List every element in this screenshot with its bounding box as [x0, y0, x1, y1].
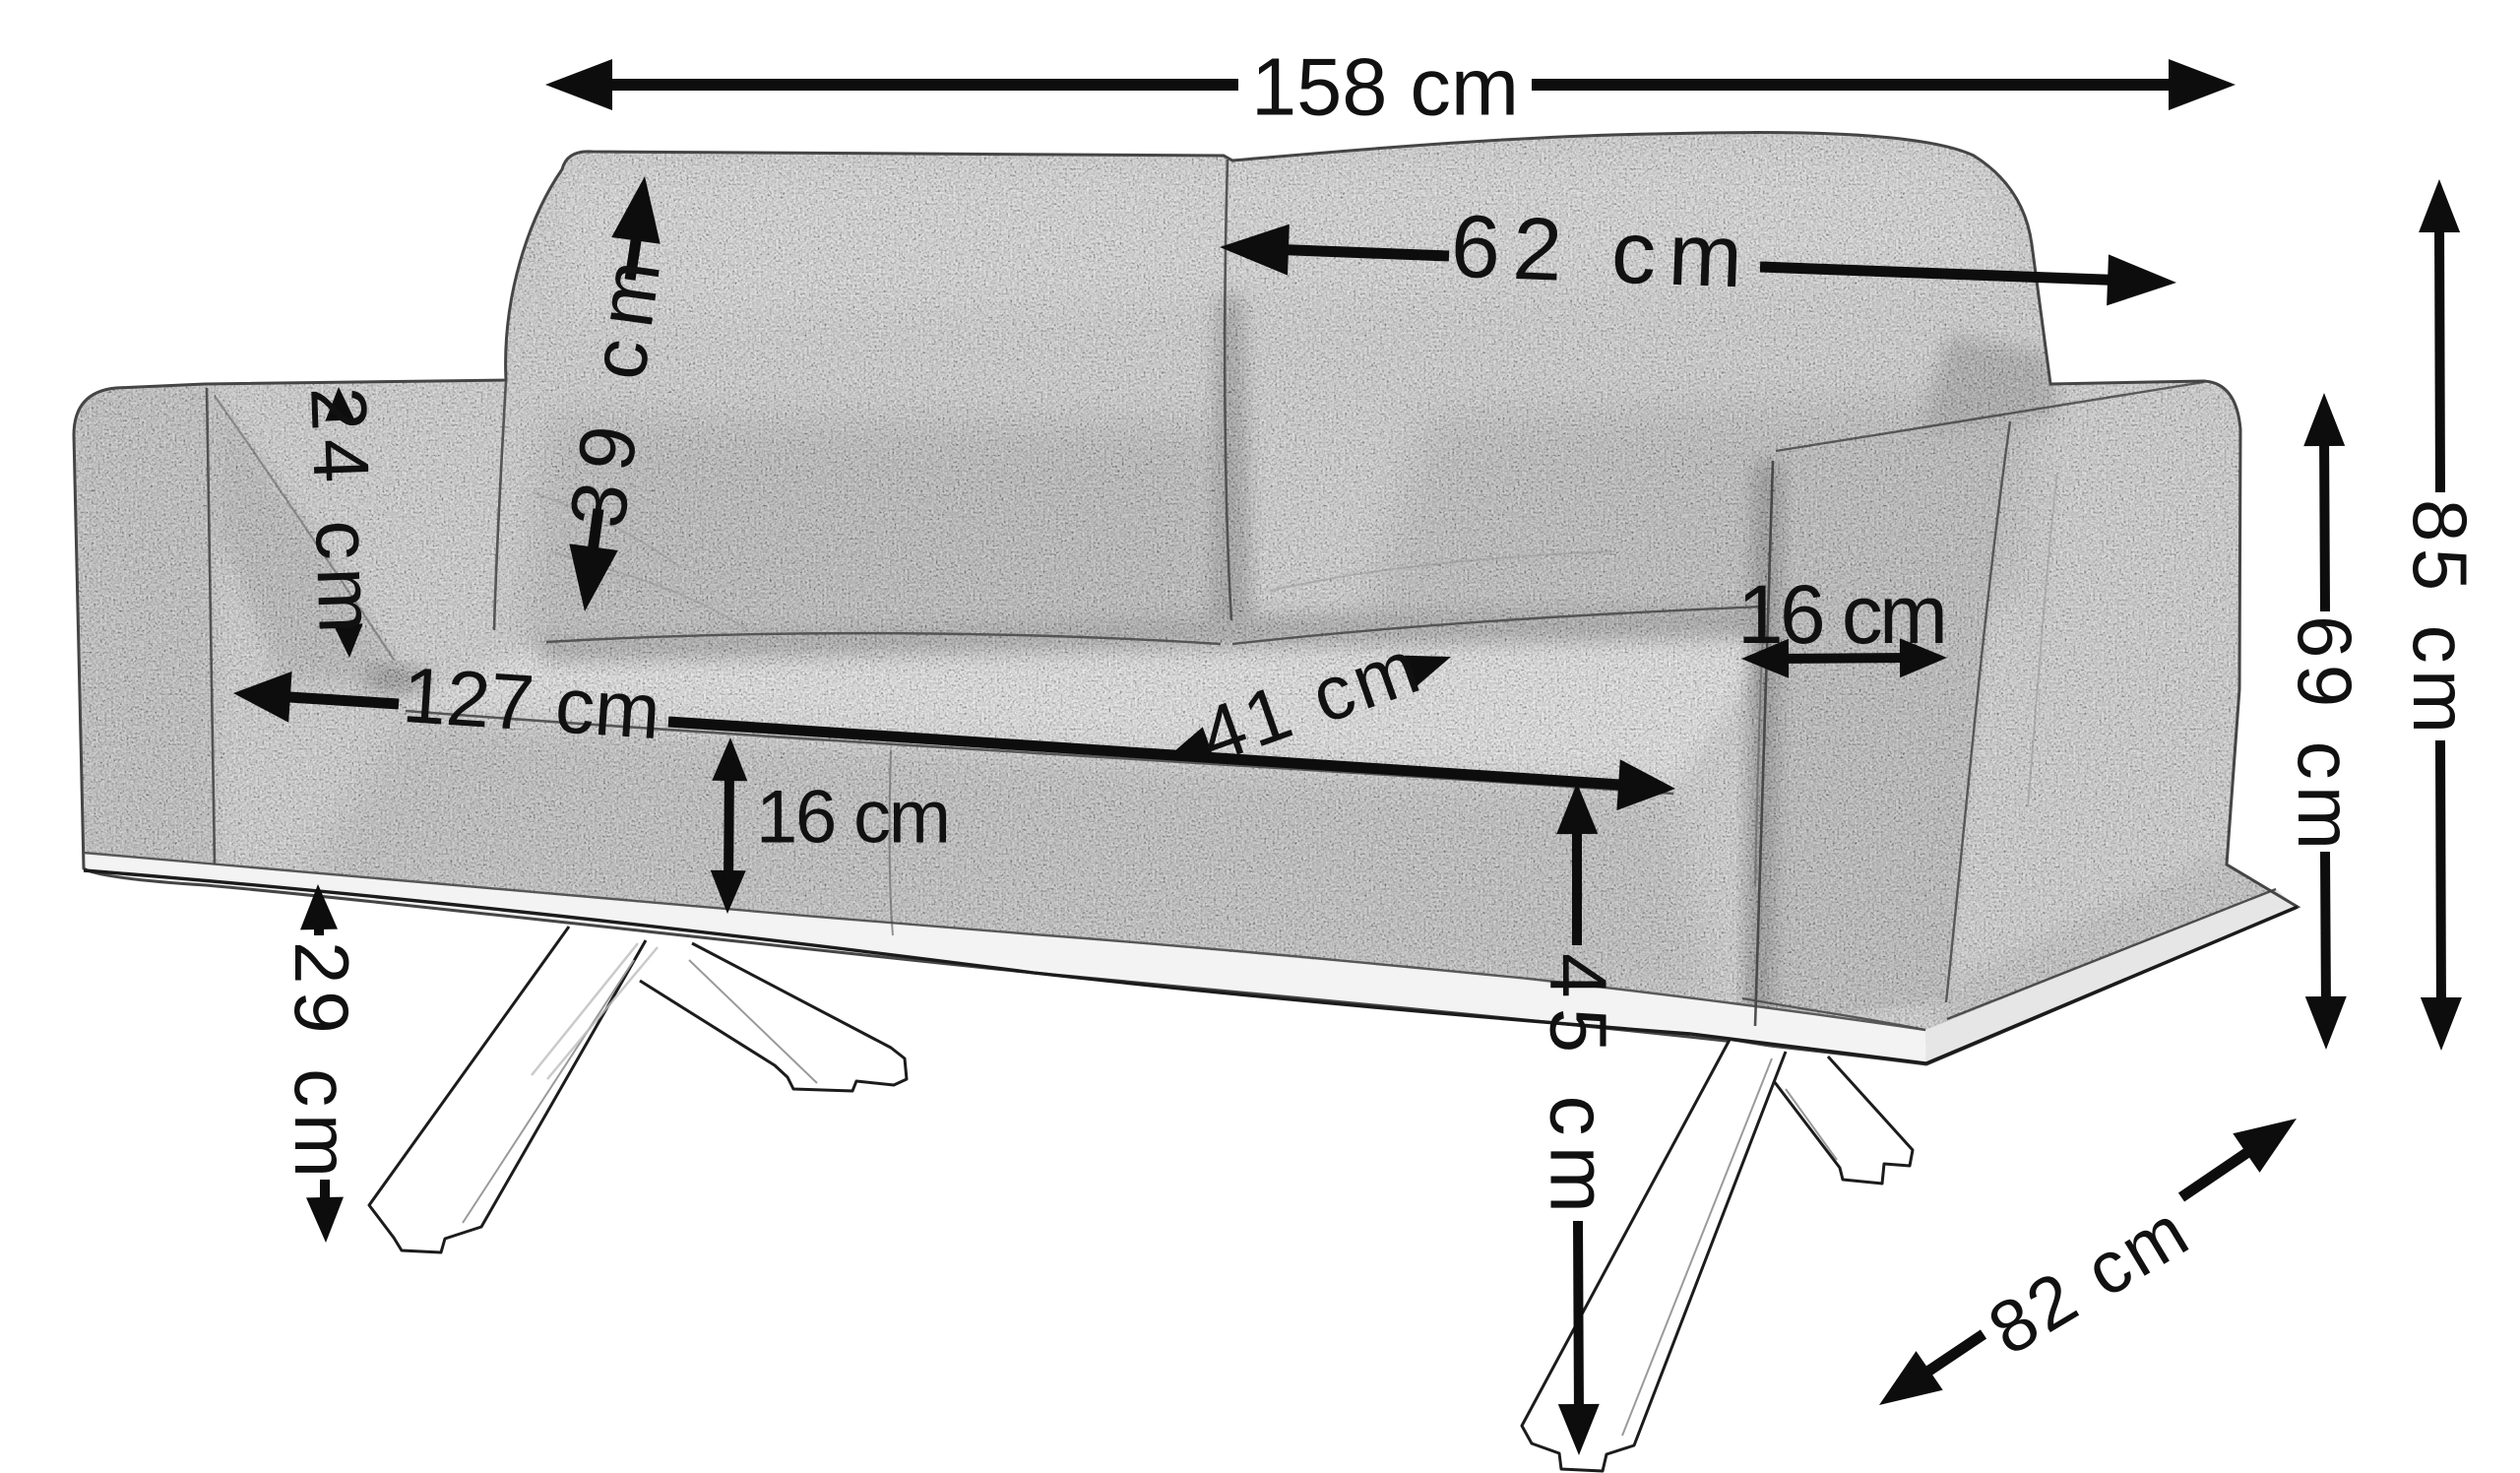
svg-text:127 cm: 127 cm [400, 651, 662, 755]
svg-text:85 cm: 85 cm [2397, 499, 2484, 734]
svg-text:45 cm: 45 cm [1534, 953, 1623, 1213]
svg-text:29 cm: 29 cm [279, 941, 365, 1178]
svg-text:158 cm: 158 cm [1251, 41, 1519, 133]
svg-text:24 cm: 24 cm [294, 386, 391, 635]
svg-text:69 cm: 69 cm [2282, 615, 2368, 850]
svg-text:16 cm: 16 cm [1737, 568, 1948, 661]
svg-text:62 cm: 62 cm [1449, 198, 1743, 307]
svg-text:16 cm: 16 cm [756, 776, 951, 860]
